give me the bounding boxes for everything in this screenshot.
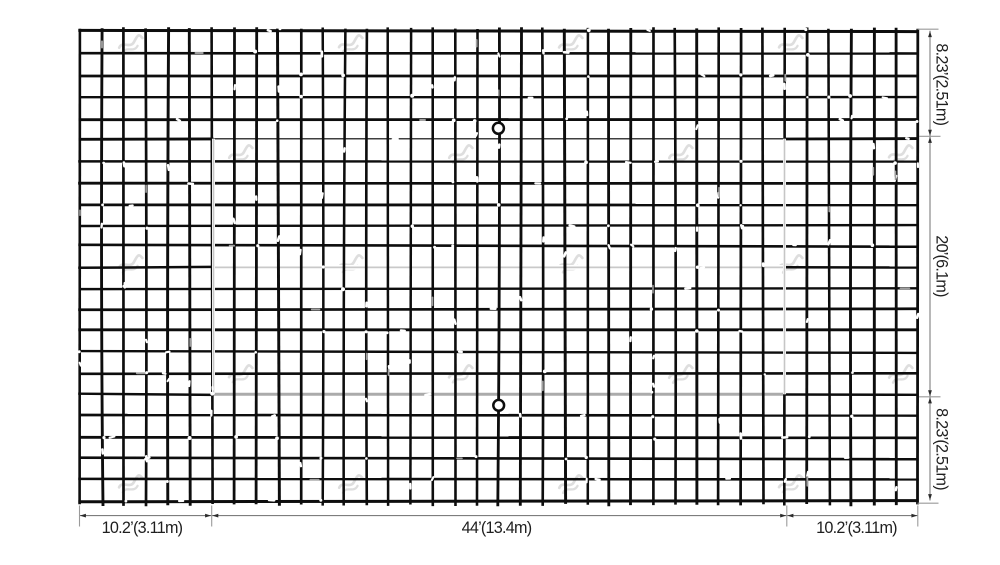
svg-text:20’(6.1m): 20’(6.1m) xyxy=(933,235,951,297)
svg-text:8.23’(2.51m): 8.23’(2.51m) xyxy=(933,43,951,125)
svg-text:10.2’(3.11m): 10.2’(3.11m) xyxy=(816,519,897,537)
svg-text:8.23’(2.51m): 8.23’(2.51m) xyxy=(933,408,951,490)
svg-text:10.2’(3.11m): 10.2’(3.11m) xyxy=(102,519,183,537)
svg-text:44’(13.4m): 44’(13.4m) xyxy=(462,519,532,537)
